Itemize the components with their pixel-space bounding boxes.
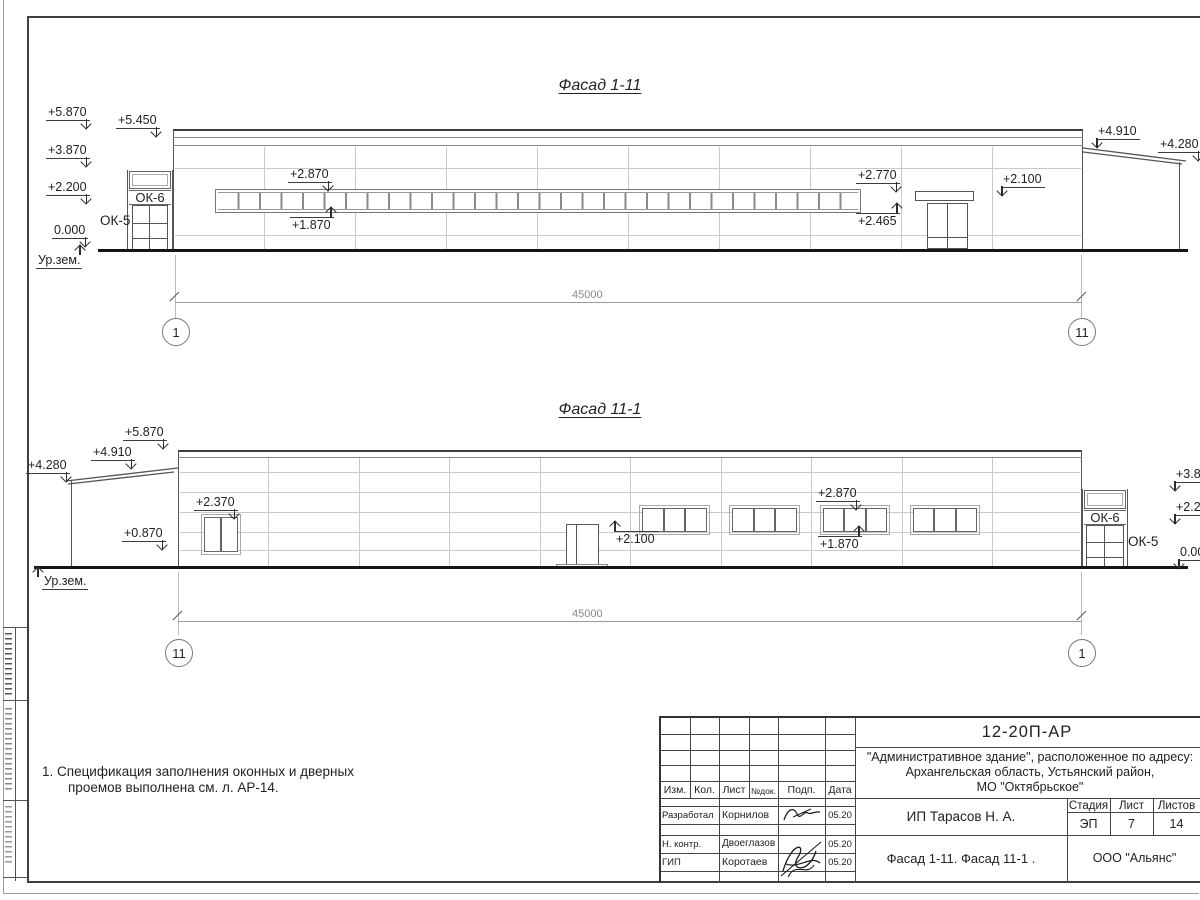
row-role: ГИП: [662, 857, 718, 868]
elevation-mark: +2.100: [614, 531, 658, 546]
elevation-arrow-icon: [229, 509, 241, 520]
project-line1: "Административное здание", расположенное…: [857, 750, 1200, 764]
titleblock-line: [719, 717, 720, 883]
door-panel-line: [576, 525, 577, 566]
row-name: Двоеглазов: [722, 838, 778, 849]
elevation-arrow-icon: [1193, 151, 1200, 162]
facade2-ok5-door: [1086, 525, 1124, 568]
elevation-arrow-icon: [81, 119, 93, 130]
facade1-ok5-door: [132, 205, 168, 250]
elevation-arrow-icon: [81, 194, 93, 205]
elevation-mark: +2.20: [1174, 501, 1200, 516]
extension-line: [178, 572, 179, 635]
facade2-ok6-window: [1084, 490, 1126, 509]
elevation-arrow-icon: [853, 525, 865, 536]
facade1-panel-joint: [901, 147, 902, 249]
col-header-podp: Подп.: [778, 784, 825, 796]
stamp-strip-clipped-text: [5, 633, 12, 695]
elevation-mark: +1.870: [290, 217, 334, 232]
facade1-axis-bubble-right: 11: [1068, 318, 1096, 346]
elevation-mark: +2.870: [288, 168, 332, 183]
elevation-arrow-icon: [1173, 559, 1185, 570]
col-header-list: Лист: [719, 784, 749, 796]
stamp-strip-clipped-text: [5, 708, 12, 792]
facade2-panel-joint: [449, 458, 450, 566]
ground-arrow-icon: [74, 244, 86, 255]
facade2-axis-bubble-right: 1: [1068, 639, 1096, 667]
window-pane: [867, 509, 886, 531]
facade2-title: Фасад 11-1: [515, 401, 685, 419]
document-code: 12-20П-АР: [857, 723, 1197, 742]
frame-inner-bottom: [27, 881, 1200, 883]
col-header-izm: Изм.: [660, 784, 690, 796]
elevation-mark: +0.870: [122, 527, 166, 542]
window-pane: [755, 509, 775, 531]
facade2-axis-bubble-left: 11: [165, 639, 193, 667]
elevation-arrow-icon: [325, 206, 337, 217]
window-pane: [914, 509, 933, 531]
row-name: Корнилов: [722, 809, 778, 821]
elevation-mark: +2.200: [46, 181, 90, 196]
company-name: ООО "Альянс": [1069, 851, 1200, 865]
elevation-mark: +2.370: [194, 496, 238, 511]
elevation-mark: +3.87: [1174, 468, 1200, 483]
window-inner-frame: [1087, 493, 1123, 506]
project-line2: Архангельская область, Устьянский район,: [857, 765, 1200, 779]
facade1-ok6-window: [129, 171, 171, 189]
elevation-arrow-icon: [851, 500, 863, 511]
titleblock-line: [660, 824, 855, 825]
row-date: 05.20: [826, 857, 854, 868]
facade2-window: [642, 508, 707, 532]
extension-line: [1081, 572, 1082, 635]
col-header-data: Дата: [825, 784, 855, 796]
elevation-mark: +4.280: [1158, 138, 1200, 153]
elevation-arrow-icon: [323, 181, 335, 192]
extension-line: [175, 255, 176, 318]
facade1-annex-wall: [1179, 162, 1180, 250]
row-date: 05.20: [826, 810, 854, 821]
titleblock-line: [660, 750, 855, 751]
window-inner-frame: [132, 174, 168, 186]
sheet-name: Фасад 1-11. Фасад 11-1 .: [857, 851, 1065, 866]
ground-arrow-icon: [32, 566, 44, 577]
row-name: Коротаев: [722, 856, 778, 868]
facade2-panel-joint: [721, 458, 722, 566]
titleblock-line: [855, 717, 856, 883]
ground-level-mark: Ур.зем.: [42, 574, 88, 590]
elevation-arrow-icon: [158, 439, 170, 450]
window-pane: [665, 509, 685, 531]
stamp-strip-clipped-text: [5, 806, 12, 866]
elevation-arrow-icon: [81, 157, 93, 168]
stamp-strip-vline: [15, 627, 16, 881]
signature: [780, 805, 824, 824]
client-name: ИП Тарасов Н. А.: [857, 809, 1065, 824]
ground-level-mark: Ур.зем.: [36, 253, 82, 269]
frame-outer-left: [3, 0, 4, 893]
facade2-panel-joint: [540, 458, 541, 566]
row-role: Н. контр.: [662, 839, 718, 850]
elevation-mark: +4.280: [26, 459, 70, 474]
sheets-total: 14: [1153, 817, 1200, 831]
door-crossbar: [133, 223, 167, 224]
facade2-ok6-label-cell: ОК-6: [1084, 510, 1126, 525]
facade2-window: [913, 508, 977, 532]
door-mullion: [947, 204, 948, 248]
ribbon-window-panes: [218, 192, 858, 210]
titleblock-top-border: [659, 716, 1200, 718]
frame-inner-left: [27, 16, 29, 883]
elevation-mark: +2.100: [1001, 173, 1045, 188]
elevation-mark: +2.465: [856, 213, 900, 228]
titleblock-line: [660, 765, 855, 766]
facade2-small-window: [204, 517, 238, 552]
door-crossbar: [1087, 557, 1123, 558]
titleblock-line: [855, 747, 1200, 748]
signature: [776, 833, 824, 881]
elevation-arrow-icon: [996, 186, 1008, 197]
titleblock-line: [1067, 812, 1200, 813]
elevation-mark: +2.870: [816, 487, 860, 502]
facade1-title: Фасад 1-11: [515, 77, 685, 95]
facade1-ok5-label: ОК-5: [100, 213, 130, 228]
titleblock-left-border: [659, 716, 661, 883]
note-line1: 1. Спецификация заполнения оконных и две…: [42, 764, 354, 779]
door-crossbar: [133, 238, 167, 239]
drawing-sheet: Фасад 1-11 ОК-6 ОК-5 +5.870 +3.870 +2.20…: [0, 0, 1200, 900]
titleblock-line: [660, 734, 855, 735]
window-pane: [686, 509, 706, 531]
facade2-panel-joint: [811, 458, 812, 566]
elevation-arrow-icon: [891, 182, 903, 193]
window-pane: [824, 509, 843, 531]
window-pane: [935, 509, 954, 531]
door-crossbar: [1087, 542, 1123, 543]
facade1-entrance-door: [927, 203, 968, 249]
facade2-panel-joint: [268, 458, 269, 566]
facade1-ok6-label-cell: ОК-6: [129, 190, 171, 205]
facade1-parapet-line: [173, 137, 1083, 138]
titleblock-line: [660, 835, 1200, 836]
elevation-mark: +4.910: [91, 446, 135, 461]
project-line3: МО "Октябрьское": [857, 780, 1200, 794]
titleblock-line: [660, 798, 1200, 799]
window-pane: [733, 509, 753, 531]
facade2-middle-door: [566, 524, 599, 567]
note-line2: проемов выполнена см. л. АР-14.: [68, 780, 279, 795]
facade1-axis-bubble-left: 1: [162, 318, 190, 346]
window-mullion: [220, 518, 222, 551]
door-mullion: [149, 206, 150, 249]
sheets-label: Листов: [1153, 800, 1200, 812]
facade2-ok5-label: ОК-5: [1128, 534, 1158, 549]
elevation-mark: +5.450: [116, 114, 160, 129]
titleblock-line: [660, 806, 855, 807]
elevation-mark: +2.770: [856, 169, 900, 184]
facade1-parapet-line: [173, 145, 1083, 146]
elevation-arrow-icon: [609, 520, 621, 531]
row-date: 05.20: [826, 839, 854, 850]
elevation-arrow-icon: [891, 202, 903, 213]
elevation-arrow-icon: [157, 540, 169, 551]
elevation-mark: 0.00: [1178, 546, 1200, 561]
facade1-ribbon-window: [215, 189, 861, 213]
col-header-ndok: №док.: [749, 786, 778, 796]
door-mullion: [1104, 526, 1105, 567]
window-pane: [776, 509, 796, 531]
frame-inner-top: [27, 16, 1200, 18]
ok6-label: ОК-6: [135, 190, 164, 205]
facade2-annex-roof: [60, 460, 184, 488]
facade1-entrance-canopy: [915, 191, 974, 201]
window-pane: [643, 509, 663, 531]
ok6-label: ОК-6: [1090, 510, 1119, 525]
facade1-panel-joint: [992, 147, 993, 249]
elevation-arrow-icon: [1169, 481, 1181, 492]
sheet-label: Лист: [1110, 800, 1153, 812]
elevation-mark: +5.870: [46, 106, 90, 121]
elevation-arrow-icon: [126, 459, 138, 470]
titleblock-line: [660, 871, 855, 872]
elevation-mark: +5.870: [123, 426, 167, 441]
stage-value: ЭП: [1067, 817, 1110, 831]
elevation-mark: 0.000: [52, 224, 88, 239]
extension-line: [1081, 255, 1082, 318]
facade2-panel-joint: [630, 458, 631, 566]
window-pane: [957, 509, 976, 531]
elevation-mark: +4.910: [1096, 125, 1140, 140]
facade1-dimension-line: [175, 302, 1082, 303]
row-role: Разработал: [662, 810, 718, 821]
elevation-arrow-icon: [1091, 138, 1103, 149]
titleblock-line: [660, 781, 855, 782]
elevation-arrow-icon: [61, 472, 73, 483]
frame-outer-bottom: [3, 893, 1199, 894]
door-crossbar: [928, 237, 967, 238]
facade1-dimension-value: 45000: [572, 289, 603, 301]
col-header-kol: Кол.: [690, 784, 719, 796]
facade2-window: [732, 508, 797, 532]
sheet-number: 7: [1110, 817, 1153, 831]
facade2-ground-line: [34, 566, 1188, 569]
elevation-mark: +1.870: [818, 536, 862, 551]
facade2-panel-joint: [359, 458, 360, 566]
facade1-ground-line: [98, 249, 1188, 252]
stage-label: Стадия: [1067, 800, 1110, 812]
elevation-arrow-icon: [151, 127, 163, 138]
facade2-panel-joint: [902, 458, 903, 566]
facade2-dimension-value: 45000: [572, 608, 603, 620]
titleblock-line: [660, 853, 855, 854]
facade2-panel-joint: [992, 458, 993, 566]
elevation-mark: +3.870: [46, 144, 90, 159]
facade2-dimension-line: [178, 621, 1082, 622]
facade2-annex-wall: [71, 481, 72, 567]
elevation-arrow-icon: [1169, 514, 1181, 525]
